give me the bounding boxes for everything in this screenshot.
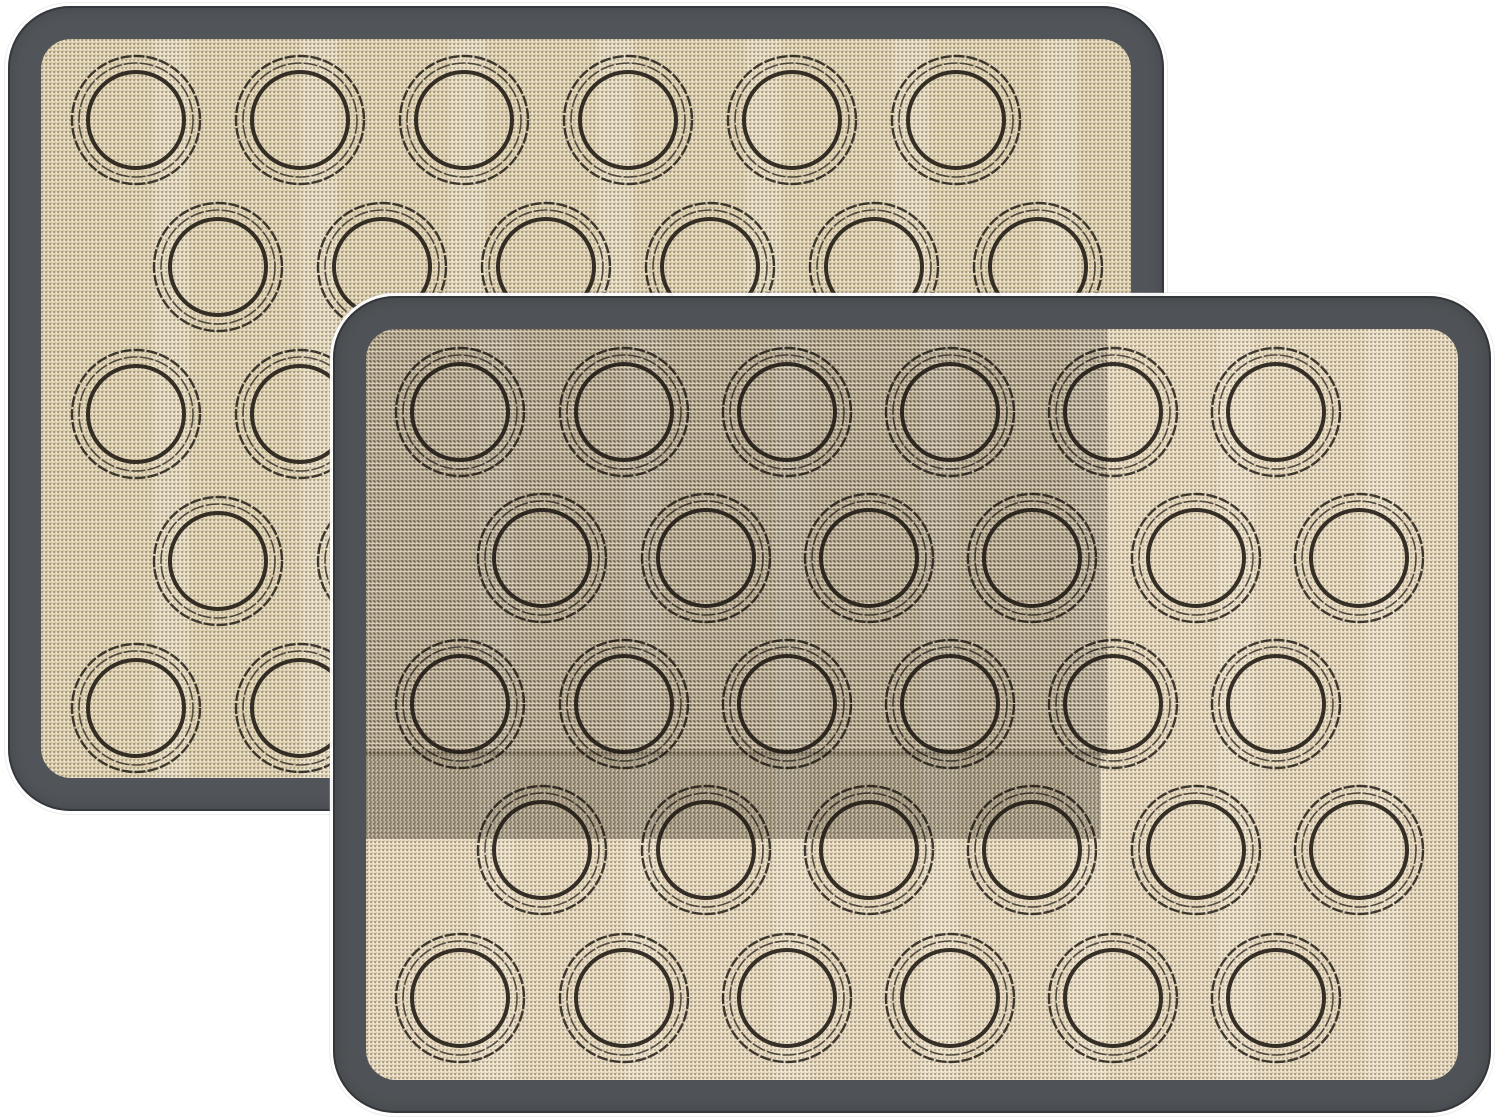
baking-mat-front	[333, 296, 1491, 1113]
weave-shade-region-front-2	[366, 751, 1101, 839]
weave-shade-region-front-1	[366, 329, 1107, 756]
product-photo-stage	[0, 0, 1498, 1118]
mat-surface-front	[366, 329, 1458, 1080]
